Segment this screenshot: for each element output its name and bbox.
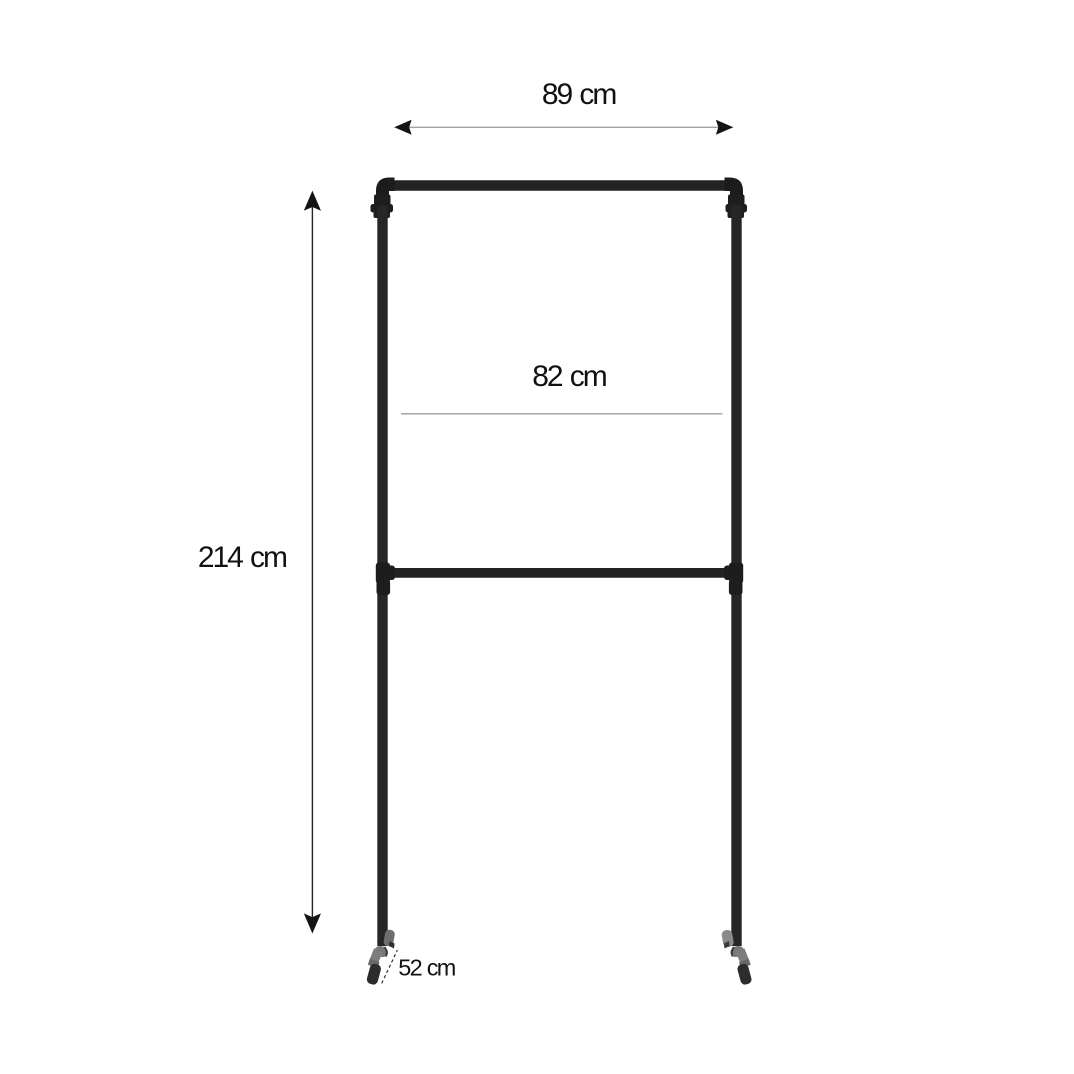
svg-text:52 cm: 52 cm bbox=[398, 955, 455, 981]
svg-text:214 cm: 214 cm bbox=[198, 541, 287, 574]
svg-text:89 cm: 89 cm bbox=[542, 78, 617, 111]
svg-text:82 cm: 82 cm bbox=[532, 360, 607, 393]
